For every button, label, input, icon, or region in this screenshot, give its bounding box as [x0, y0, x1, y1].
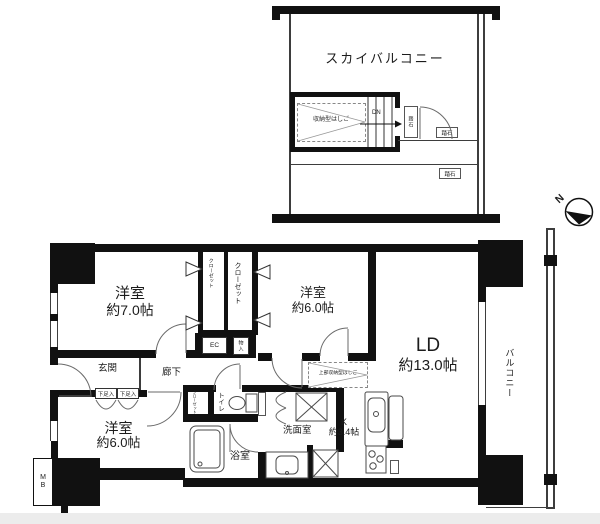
- stair-treads: [368, 97, 392, 147]
- bathtub: [190, 426, 224, 472]
- washroom-folding-door-2: [276, 408, 286, 424]
- closet-chevron-4: [254, 313, 270, 327]
- kitchen-stove: [366, 446, 386, 473]
- sky-door-arc: [420, 107, 452, 139]
- toilet-fixture: [229, 394, 257, 412]
- entrance-door-arc: [58, 364, 91, 397]
- bedroom6-door-arc: [320, 328, 348, 356]
- washing-machine-pan: [296, 393, 327, 421]
- bedroom6b-door-arc: [147, 392, 181, 426]
- closet-chevron-3: [254, 265, 270, 279]
- dn-arrow: [360, 121, 402, 128]
- shoe-cabinet-arc-2: [118, 400, 138, 409]
- toilet-door-arc: [214, 364, 240, 390]
- closet-chevron-1: [186, 262, 202, 276]
- fridge-space: [313, 450, 338, 477]
- washroom-folding-door-1: [276, 392, 286, 408]
- bath-door-arc: [230, 424, 258, 452]
- ladder-box-cross: [298, 104, 365, 141]
- plan-overlay: [0, 0, 600, 524]
- floor-plan: スカイバルコニー 収納型はしご DN 踏石 踏石 踏石 MB EC: [0, 0, 600, 524]
- north-arrow-icon: [566, 199, 593, 226]
- ld-door-arc: [272, 358, 302, 388]
- vanity-sink: [266, 452, 308, 478]
- shoe-cabinet-arc-1: [96, 400, 116, 409]
- closet-chevron-2: [186, 316, 202, 330]
- ladder-above-cross: [309, 363, 367, 387]
- kitchen-counter: [389, 396, 403, 440]
- bedroom7-door-arc: [156, 324, 186, 354]
- kitchen-sink-unit: [365, 392, 388, 446]
